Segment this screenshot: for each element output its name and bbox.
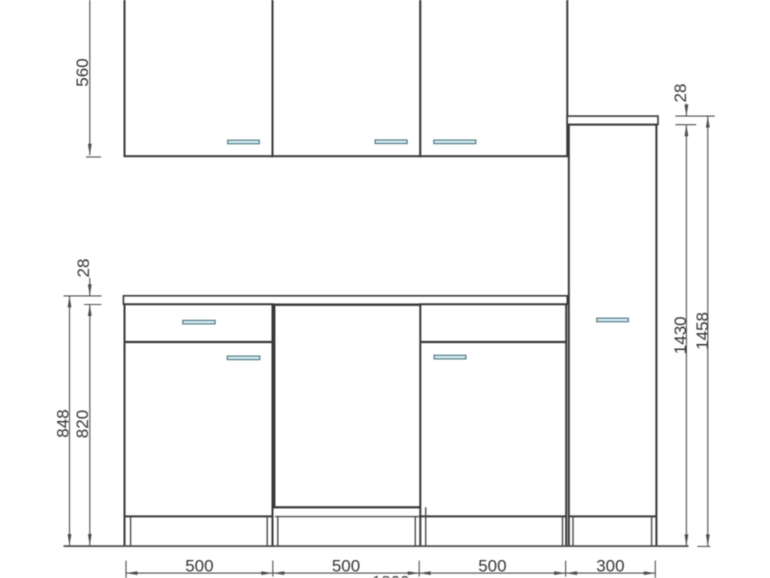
svg-text:848: 848 [54, 409, 73, 437]
svg-text:1800: 1800 [372, 573, 410, 578]
svg-text:1430: 1430 [671, 316, 690, 354]
svg-text:500: 500 [478, 556, 506, 575]
svg-text:1458: 1458 [693, 312, 712, 350]
svg-text:28: 28 [74, 259, 93, 278]
svg-text:500: 500 [185, 556, 213, 575]
svg-text:560: 560 [73, 58, 92, 86]
svg-text:820: 820 [73, 410, 92, 438]
svg-text:28: 28 [671, 84, 690, 103]
svg-text:500: 500 [332, 556, 360, 575]
svg-text:300: 300 [596, 556, 624, 575]
